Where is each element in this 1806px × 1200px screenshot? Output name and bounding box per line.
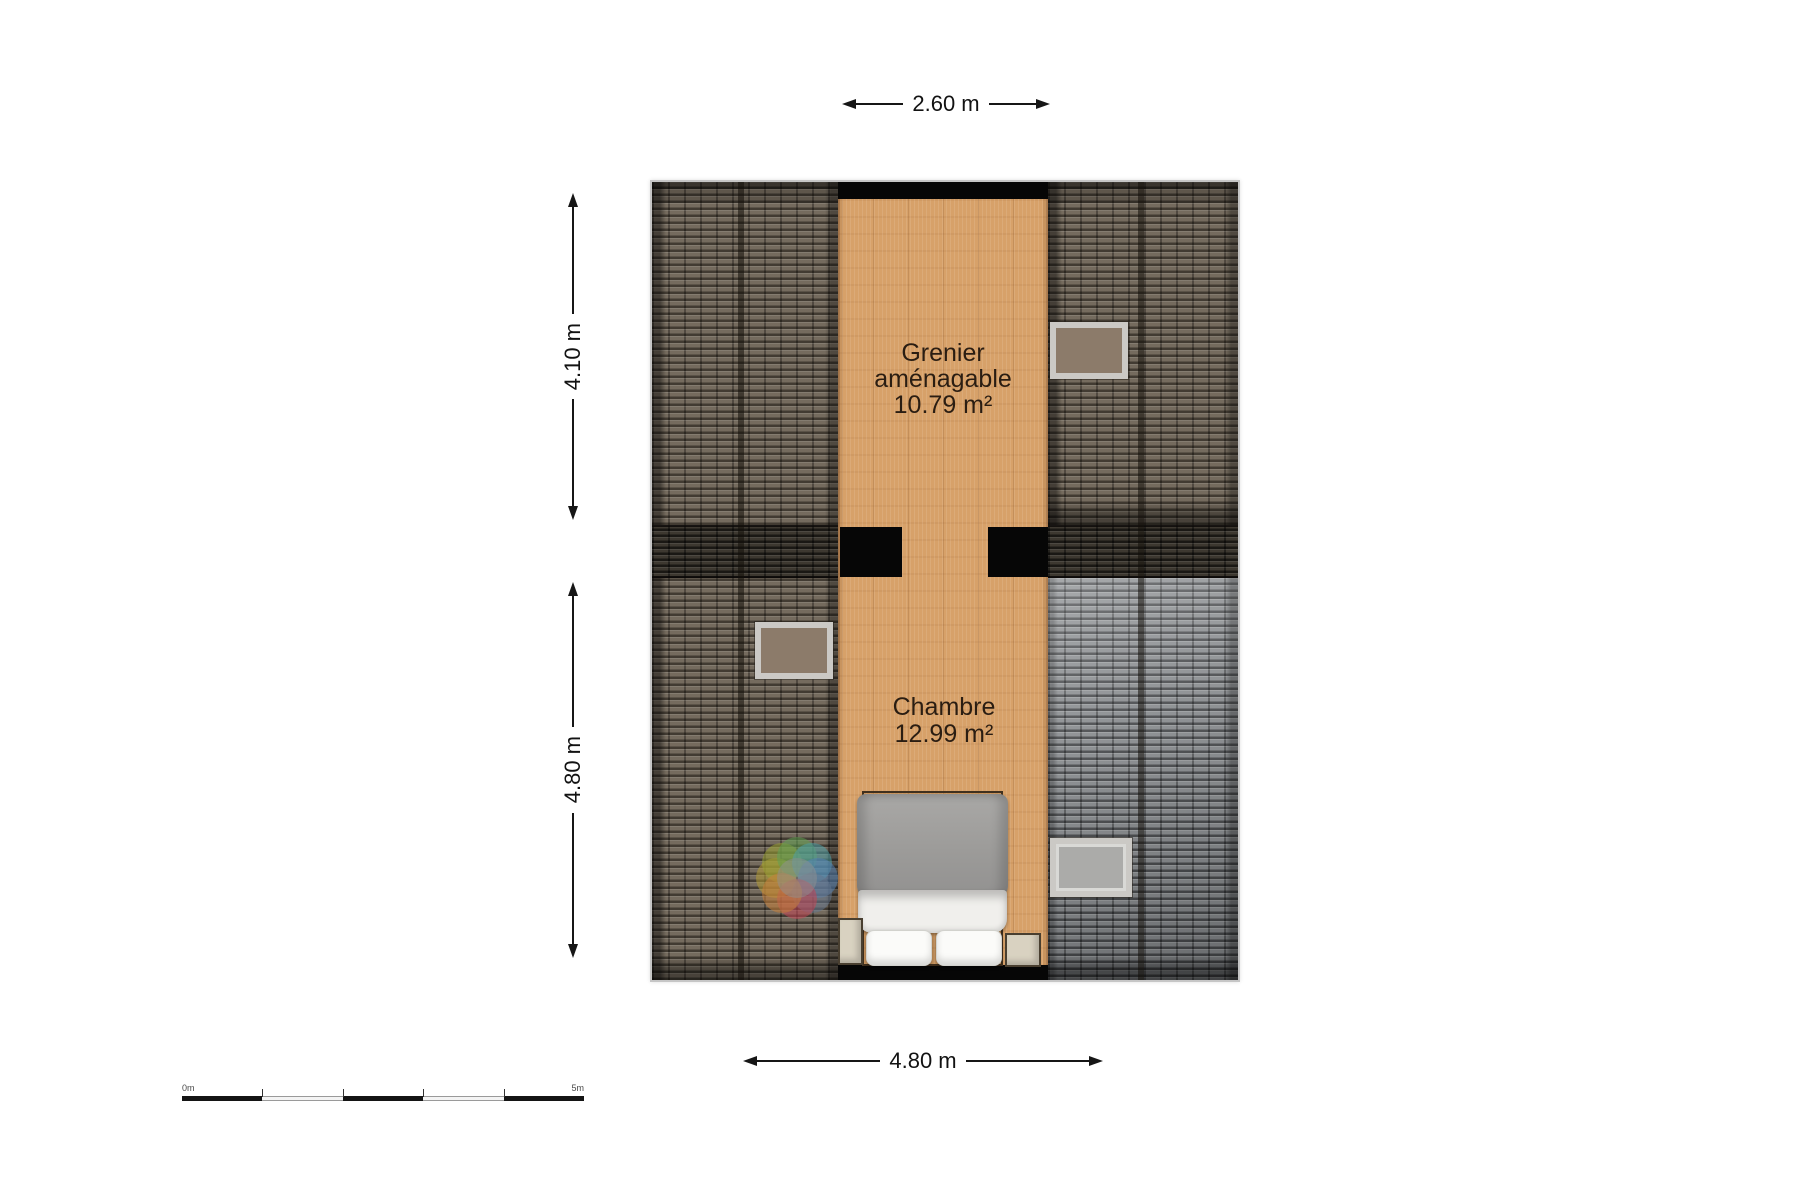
dimension-left-upper: 4.10 m [562,193,584,520]
dimension-label: 2.60 m [903,91,988,117]
dimension-line [572,399,574,506]
scale-bar-segment [262,1096,342,1101]
dimension-line [757,1060,880,1062]
room-name-line: aménagable [838,366,1048,392]
nightstand-left [838,918,863,965]
dimension-line [572,813,574,944]
bed-pillow-left [866,930,932,966]
scale-bar-segment [423,1096,503,1101]
wall-stub-left [840,527,902,577]
wall-stub-right [988,527,1048,577]
room-name-line: Chambre [838,694,1050,721]
arrowhead-up-icon [568,193,578,207]
skylight-pane [1056,844,1126,891]
dimension-label: 4.10 m [560,314,586,399]
skylight-pane [1056,328,1122,373]
room-label-grenier: Grenier aménagable 10.79 m² [838,340,1048,418]
skylight-window-upper-right [1050,322,1128,379]
scale-bar: 0m 5m [182,1083,584,1103]
scale-bar-segment [343,1096,423,1101]
scale-bar-end-label: 5m [571,1083,584,1093]
arrowhead-left-icon [842,99,856,109]
bed-pillow-right [936,930,1002,966]
roof-ridge-line-right [1138,182,1144,980]
scale-bar-track [182,1096,584,1101]
arrowhead-down-icon [568,506,578,520]
dimension-line [989,103,1036,105]
roof-ridge-band-left [652,525,838,578]
roof-ridge-line-left [738,182,744,980]
dimension-top: 2.60 m [842,93,1050,115]
dimension-left-lower: 4.80 m [562,582,584,958]
dimension-bottom: 4.80 m [743,1050,1103,1072]
dimension-line [572,207,574,314]
scale-bar-segment [182,1096,262,1101]
room-area: 10.79 m² [838,392,1048,418]
room-label-chambre: Chambre 12.99 m² [838,694,1050,748]
arrowhead-right-icon [1089,1056,1103,1066]
scale-bar-tick [262,1089,263,1097]
nightstand-right [1005,933,1041,967]
arrowhead-left-icon [743,1056,757,1066]
watermark-petal [777,858,817,898]
room-name-line: Grenier [838,340,1048,366]
scale-bar-tick [343,1089,344,1097]
scale-bar-tick [423,1089,424,1097]
bed [857,790,1008,968]
arrowhead-down-icon [568,944,578,958]
watermark-logo [755,836,839,920]
dimension-label: 4.80 m [560,727,586,812]
dimension-line [966,1060,1089,1062]
skylight-window-left [755,622,833,679]
floor-plan-canvas: Grenier aménagable 10.79 m² Chambre 12.9… [0,0,1806,1200]
wall-top [838,182,1048,199]
dimension-line [572,596,574,727]
scale-bar-segment [504,1096,584,1101]
bed-duvet [857,794,1008,898]
scale-bar-tick [504,1089,505,1097]
skylight-window-lower-right [1050,838,1132,897]
dimension-label: 4.80 m [880,1048,965,1074]
dimension-line [856,103,903,105]
scale-bar-start-label: 0m [182,1083,195,1093]
skylight-pane [761,628,827,673]
floor-plan: Grenier aménagable 10.79 m² Chambre 12.9… [650,180,1240,982]
arrowhead-up-icon [568,582,578,596]
bed-sheet [858,890,1007,933]
room-area: 12.99 m² [838,721,1050,748]
arrowhead-right-icon [1036,99,1050,109]
